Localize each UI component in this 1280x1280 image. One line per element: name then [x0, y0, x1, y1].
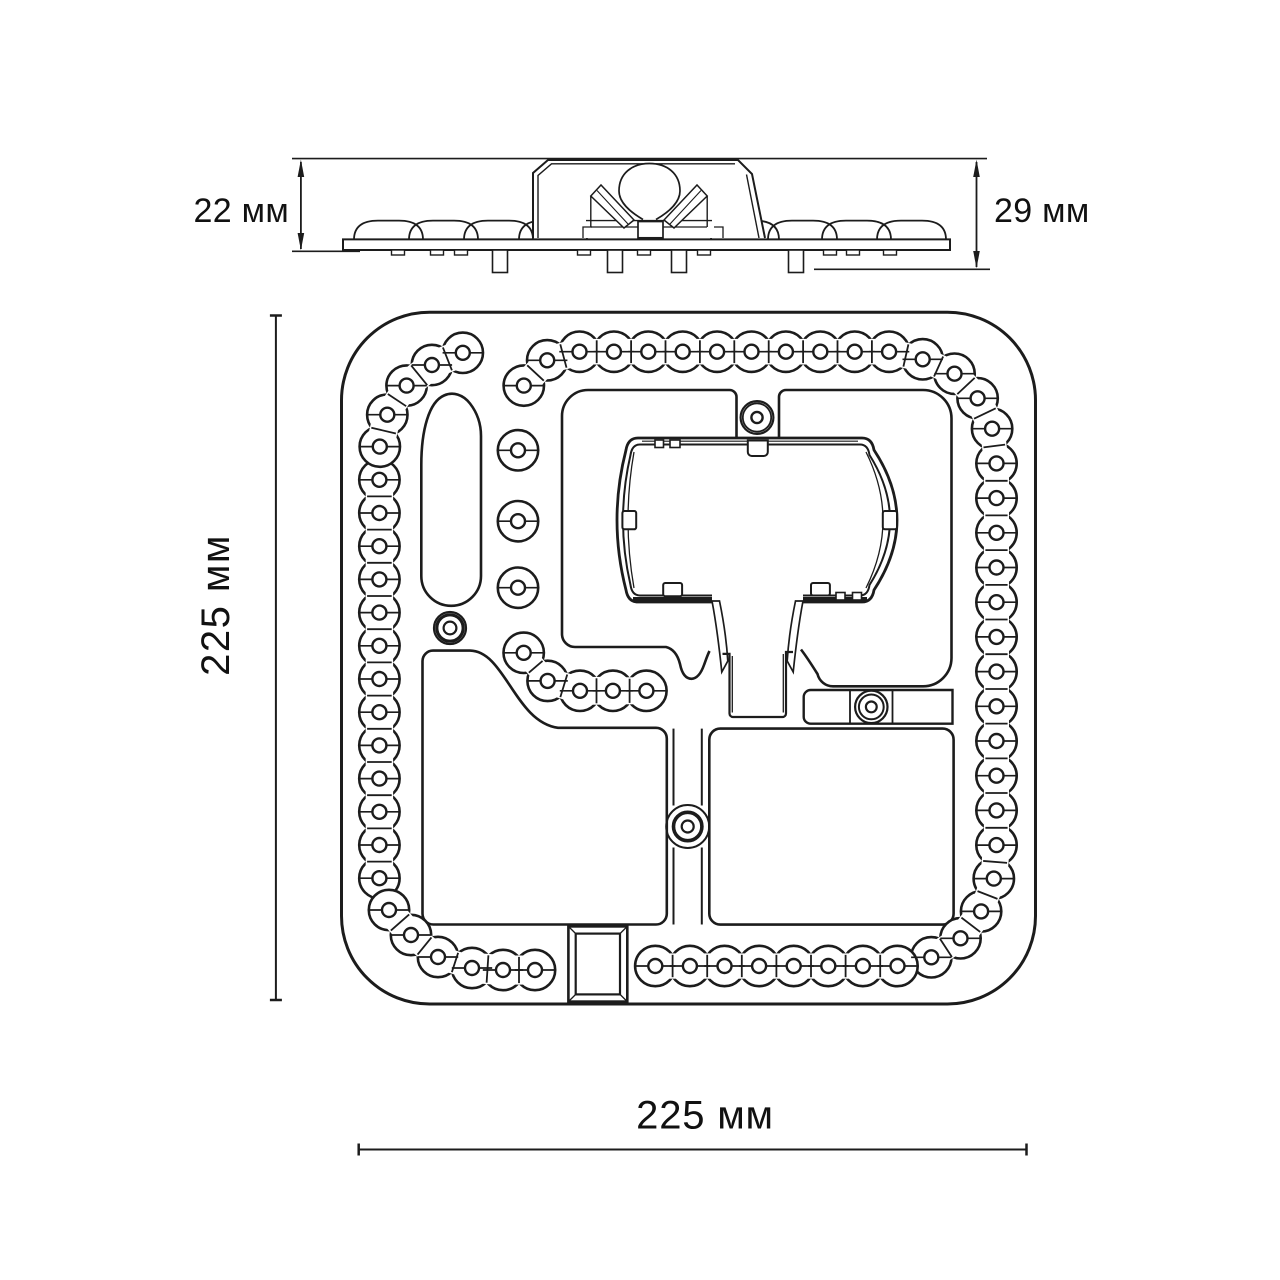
svg-text:29 мм: 29 мм: [994, 192, 1090, 230]
svg-text:225 мм: 225 мм: [636, 1094, 774, 1138]
svg-text:225 мм: 225 мм: [194, 534, 238, 676]
svg-text:22 мм: 22 мм: [193, 192, 289, 230]
